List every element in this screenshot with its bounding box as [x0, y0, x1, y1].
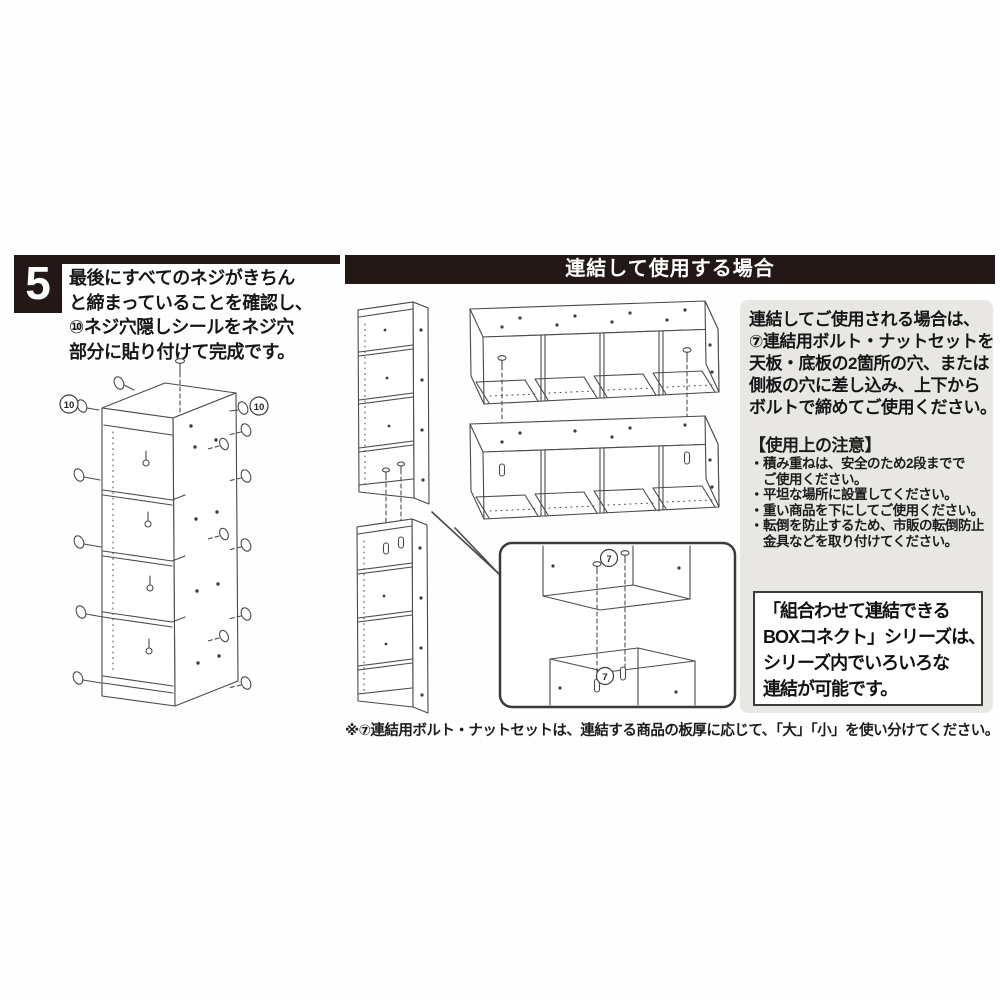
intro-line: 天板・底板の2箇所の穴、または	[749, 353, 989, 375]
part-number-badge: 10	[250, 397, 268, 415]
caution-item: ご使用ください。	[750, 472, 990, 488]
part-number-badge: 7	[601, 550, 618, 567]
step-line: ⑩ネジ穴隠しシールをネジ穴	[69, 315, 344, 340]
step-instruction-text: 最後にすべてのネジがきちん と締まっていることを確認し、 ⑩ネジ穴隠しシールをネ…	[69, 266, 344, 364]
series-line: BOXコネクト」シリーズは、	[763, 624, 973, 650]
tall-shelf-unit	[102, 383, 238, 706]
caution-title: 【使用上の注意】	[749, 431, 881, 456]
caution-item: ・平坦な場所に設置してください。	[750, 487, 990, 503]
caution-item: ・積み重ねは、安全のため2段までで	[750, 456, 990, 472]
intro-line: ⑦連結用ボルト・ナットセットを	[749, 331, 989, 353]
leader-line	[455, 528, 499, 574]
instruction-sheet: 5 最後にすべてのネジがきちん と締まっていることを確認し、 ⑩ネジ穴隠しシール…	[0, 0, 1000, 1000]
stacked-lower-unit	[470, 416, 719, 519]
step-line: 最後にすべてのネジがきちん	[69, 266, 344, 291]
caution-item: 金具などを取り付けてください。	[750, 534, 990, 550]
intro-line: ボルトで締めてご使用ください。	[749, 397, 989, 419]
completed-shelf-diagram: 10 10	[30, 358, 335, 720]
connection-instructions: 連結してご使用される場合は、 ⑦連結用ボルト・ナットセットを 天板・底板の2箇所…	[749, 309, 989, 419]
series-line: 連結が可能です。	[763, 676, 973, 702]
caution-item: ・重い商品を下にしてご使用ください。	[750, 503, 990, 519]
stacked-upper-unit	[470, 301, 719, 404]
section-title: 連結して使用する場合	[565, 258, 774, 280]
tall-unit-lower	[357, 519, 428, 713]
series-line: 「組合わせて連結できる	[763, 598, 973, 624]
step-number-badge: 5	[14, 255, 62, 313]
part-number-badge: 7	[597, 668, 614, 685]
caution-item: ・転倒を防止するため、市販の転倒防止	[750, 518, 990, 534]
step-line: と締まっていることを確認し、	[69, 291, 344, 316]
series-note-box: 「組合わせて連結できる BOXコネクト」シリーズは、 シリーズ内でいろいろな 連…	[753, 591, 983, 706]
leader-line	[432, 512, 499, 574]
svg-text:7: 7	[602, 672, 607, 683]
intro-line: 側板の穴に差し込み、上下から	[749, 375, 989, 397]
connection-diagram: 7 7	[340, 290, 745, 715]
tall-unit-upper	[358, 302, 429, 504]
intro-line: 連結してご使用される場合は、	[749, 309, 989, 331]
step-top-rule	[14, 255, 340, 264]
section-header: 連結して使用する場合	[345, 255, 995, 284]
footnote: ※⑦連結用ボルト・ナットセットは、連結する商品の板厚に応じて、「大」「小」を使い…	[345, 719, 1000, 740]
svg-text:10: 10	[254, 402, 265, 413]
series-line: シリーズ内でいろいろな	[763, 650, 973, 676]
info-panel: 連結してご使用される場合は、 ⑦連結用ボルト・ナットセットを 天板・底板の2箇所…	[740, 300, 993, 713]
detail-inset: 7 7	[500, 543, 735, 707]
caution-list: ・積み重ねは、安全のため2段までで ご使用ください。 ・平坦な場所に設置してくだ…	[750, 456, 990, 549]
svg-text:10: 10	[64, 400, 75, 411]
svg-text:7: 7	[606, 554, 611, 565]
step-number: 5	[25, 257, 51, 309]
part-number-badge: 10	[60, 395, 78, 413]
